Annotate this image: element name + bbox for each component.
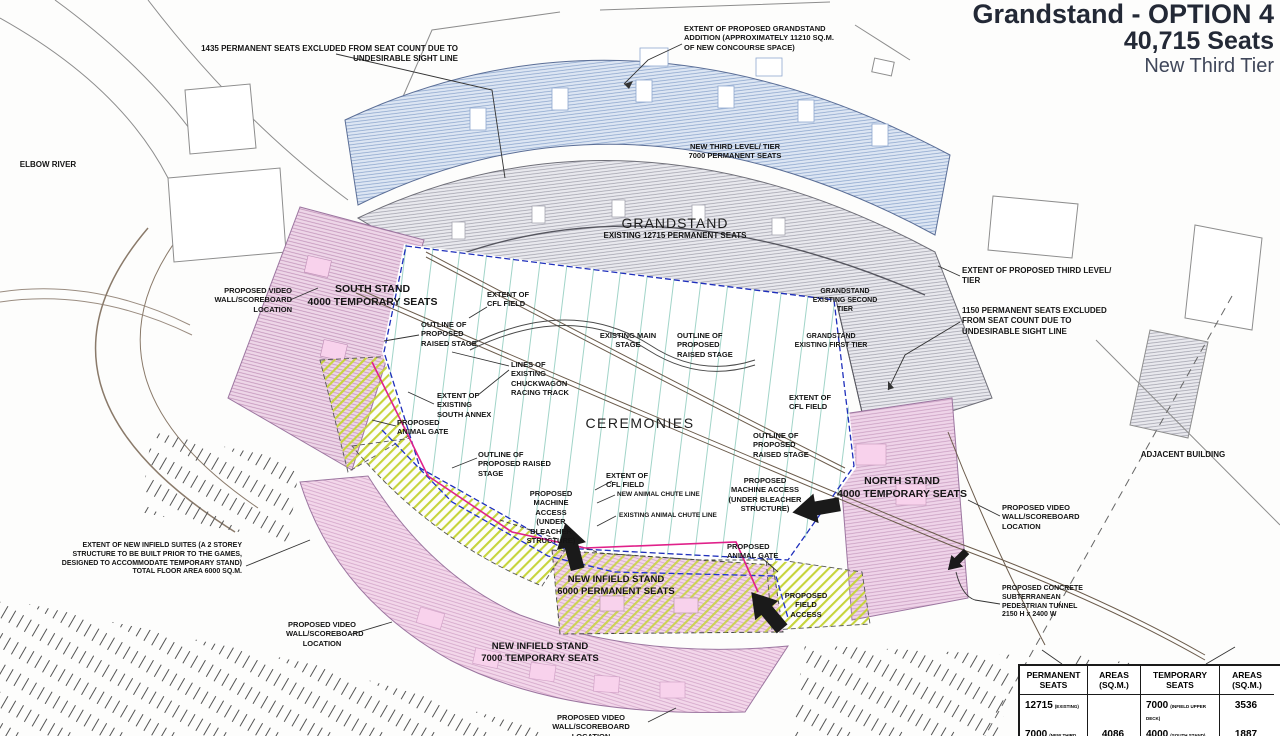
label-machine-access-west: PROPOSED MACHINE ACCESS (UNDER BLEACHER … bbox=[520, 489, 582, 545]
value-permanent-2: 7000 bbox=[1025, 729, 1047, 736]
value-temporary-2: 4000 bbox=[1146, 729, 1168, 736]
label-north-stand-name: NORTH STAND bbox=[832, 475, 972, 488]
label-extent-third-level: EXTENT OF PROPOSED THIRD LEVEL/ TIER bbox=[962, 266, 1112, 287]
label-infield-suites: EXTENT OF NEW INFIELD SUITES (A 2 STOREY… bbox=[60, 542, 242, 577]
label-video-wall-east: PROPOSED VIDEO WALL/SCOREBOARD LOCATION bbox=[1002, 503, 1082, 531]
label-infield-6000: NEW INFIELD STAND 6000 PERMANENT SEATS bbox=[556, 574, 676, 599]
label-infield-7000-seats: 7000 TEMPORARY SEATS bbox=[470, 653, 610, 665]
label-machine-access-east: PROPOSED MACHINE ACCESS (UNDER BLEACHER … bbox=[726, 476, 804, 514]
label-cfl-field-east: EXTENT OF CFL FIELD bbox=[789, 393, 837, 412]
label-north-stand-seats: 4000 TEMPORARY SEATS bbox=[832, 488, 972, 501]
label-grandstand-existing: EXISTING 12715 PERMANENT SEATS bbox=[545, 231, 805, 241]
label-existing-chute: EXISTING ANIMAL CHUTE LINE bbox=[619, 512, 719, 520]
label-raised-stage-west: OUTLINE OF PROPOSED RAISED STAGE bbox=[421, 320, 485, 348]
label-extent-addition: EXTENT OF PROPOSED GRANDSTAND ADDITION (… bbox=[684, 24, 839, 52]
table-header-permanent: PERMANENT SEATS bbox=[1020, 666, 1088, 695]
label-south-annex: EXTENT OF EXISTING SOUTH ANNEX bbox=[437, 391, 499, 419]
table-cell-permanent-2: 7000(NEW THIRD LEVEL/ TIER) bbox=[1020, 724, 1088, 736]
label-south-stand-name: SOUTH STAND bbox=[295, 283, 450, 296]
label-pedestrian-tunnel: PROPOSED CONCRETE SUBTERRANEAN PEDESTRIA… bbox=[1002, 585, 1094, 620]
label-infield-7000: NEW INFIELD STAND 7000 TEMPORARY SEATS bbox=[470, 641, 610, 666]
page-subtitle-tier: New Third Tier bbox=[972, 55, 1274, 77]
label-ceremonies: CEREMONIES bbox=[575, 416, 705, 430]
label-adjacent-building: ADJACENT BUILDING bbox=[1138, 450, 1228, 460]
label-grandstand-name: GRANDSTAND bbox=[545, 216, 805, 231]
label-elbow-river: ELBOW RIVER bbox=[18, 160, 78, 170]
label-raised-stage-south: OUTLINE OF PROPOSED RAISED STAGE bbox=[478, 450, 558, 478]
label-north-stand: NORTH STAND 4000 TEMPORARY SEATS bbox=[832, 475, 972, 501]
table-header-areas1: AREAS (SQ.M.) bbox=[1088, 666, 1141, 695]
label-field-access: PROPOSED FIELD ACCESS bbox=[780, 591, 832, 619]
label-raised-stage-east: OUTLINE OF PROPOSED RAISED STAGE bbox=[753, 431, 817, 459]
seat-count-table: PERMANENT SEATS AREAS (SQ.M.) TEMPORARY … bbox=[1018, 664, 1280, 736]
label-first-tier: GRANDSTAND EXISTING FIRST TIER bbox=[793, 333, 869, 351]
label-new-third-level-line1: NEW THIRD LEVEL/ TIER bbox=[630, 142, 840, 151]
table-header-areas2: AREAS (SQ.M.) bbox=[1220, 666, 1274, 695]
label-cfl-field-nw: EXTENT OF CFL FIELD bbox=[487, 290, 535, 309]
label-infield-7000-name: NEW INFIELD STAND bbox=[470, 641, 610, 653]
site-plan: 1435 PERMANENT SEATS EXCLUDED FROM SEAT … bbox=[0, 0, 1280, 736]
label-excluded-1435: 1435 PERMANENT SEATS EXCLUDED FROM SEAT … bbox=[200, 44, 458, 65]
label-existing-main-stage: EXISTING MAIN STAGE bbox=[592, 331, 664, 350]
label-new-third-level-line2: 7000 PERMANENT SEATS bbox=[630, 151, 840, 160]
page-title: Grandstand - OPTION 4 bbox=[972, 0, 1274, 28]
label-south-stand-seats: 4000 TEMPORARY SEATS bbox=[295, 296, 450, 309]
note-permanent-1: (EXISTING) bbox=[1055, 704, 1079, 709]
table-cell-permanent-1: 12715(EXISTING) bbox=[1020, 695, 1088, 724]
table-cell-areas2-2: 1887 bbox=[1220, 724, 1274, 736]
label-new-chute: NEW ANIMAL CHUTE LINE bbox=[617, 491, 707, 499]
label-video-wall-south: PROPOSED VIDEO WALL/SCOREBOARD LOCATION bbox=[552, 713, 630, 736]
table-cell-areas1-1 bbox=[1088, 695, 1141, 724]
label-raised-stage-ne: OUTLINE OF PROPOSED RAISED STAGE bbox=[677, 331, 743, 359]
site-plan-drawing bbox=[0, 0, 1280, 736]
value-permanent-1: 12715 bbox=[1025, 700, 1053, 711]
label-south-stand: SOUTH STAND 4000 TEMPORARY SEATS bbox=[295, 283, 450, 309]
label-chuckwagon-track: LINES OF EXISTING CHUCKWAGON RACING TRAC… bbox=[511, 360, 579, 398]
label-video-wall-west: PROPOSED VIDEO WALL/SCOREBOARD LOCATION bbox=[190, 286, 292, 314]
table-header-temporary: TEMPORARY SEATS bbox=[1141, 666, 1220, 695]
table-cell-areas1-2: 4086 bbox=[1088, 724, 1141, 736]
label-new-third-level: NEW THIRD LEVEL/ TIER 7000 PERMANENT SEA… bbox=[630, 142, 840, 161]
page-subtitle-seats: 40,715 Seats bbox=[972, 28, 1274, 55]
label-cfl-field-south: EXTENT OF CFL FIELD bbox=[606, 471, 654, 490]
label-grandstand: GRANDSTAND EXISTING 12715 PERMANENT SEAT… bbox=[545, 216, 805, 241]
title-block: Grandstand - OPTION 4 40,715 Seats New T… bbox=[972, 0, 1274, 77]
label-infield-6000-name: NEW INFIELD STAND bbox=[556, 574, 676, 586]
label-infield-6000-seats: 6000 PERMANENT SEATS bbox=[556, 586, 676, 598]
label-animal-gate-east: PROPOSED ANIMAL GATE bbox=[727, 542, 785, 561]
label-video-wall-southwest: PROPOSED VIDEO WALL/SCOREBOARD LOCATION bbox=[286, 620, 358, 648]
value-temporary-1: 7000 bbox=[1146, 700, 1168, 711]
label-animal-gate-west: PROPOSED ANIMAL GATE bbox=[397, 418, 455, 437]
label-excluded-1150: 1150 PERMANENT SEATS EXCLUDED FROM SEAT … bbox=[962, 306, 1130, 337]
label-second-tier: GRANDSTAND EXISTING SECOND TIER bbox=[808, 288, 882, 314]
table-cell-temporary-2: 4000(SOUTH STAND) bbox=[1141, 724, 1220, 736]
table-cell-temporary-1: 7000(INFIELD UPPER DECK) bbox=[1141, 695, 1220, 724]
table-cell-areas2-1: 3536 bbox=[1220, 695, 1274, 724]
